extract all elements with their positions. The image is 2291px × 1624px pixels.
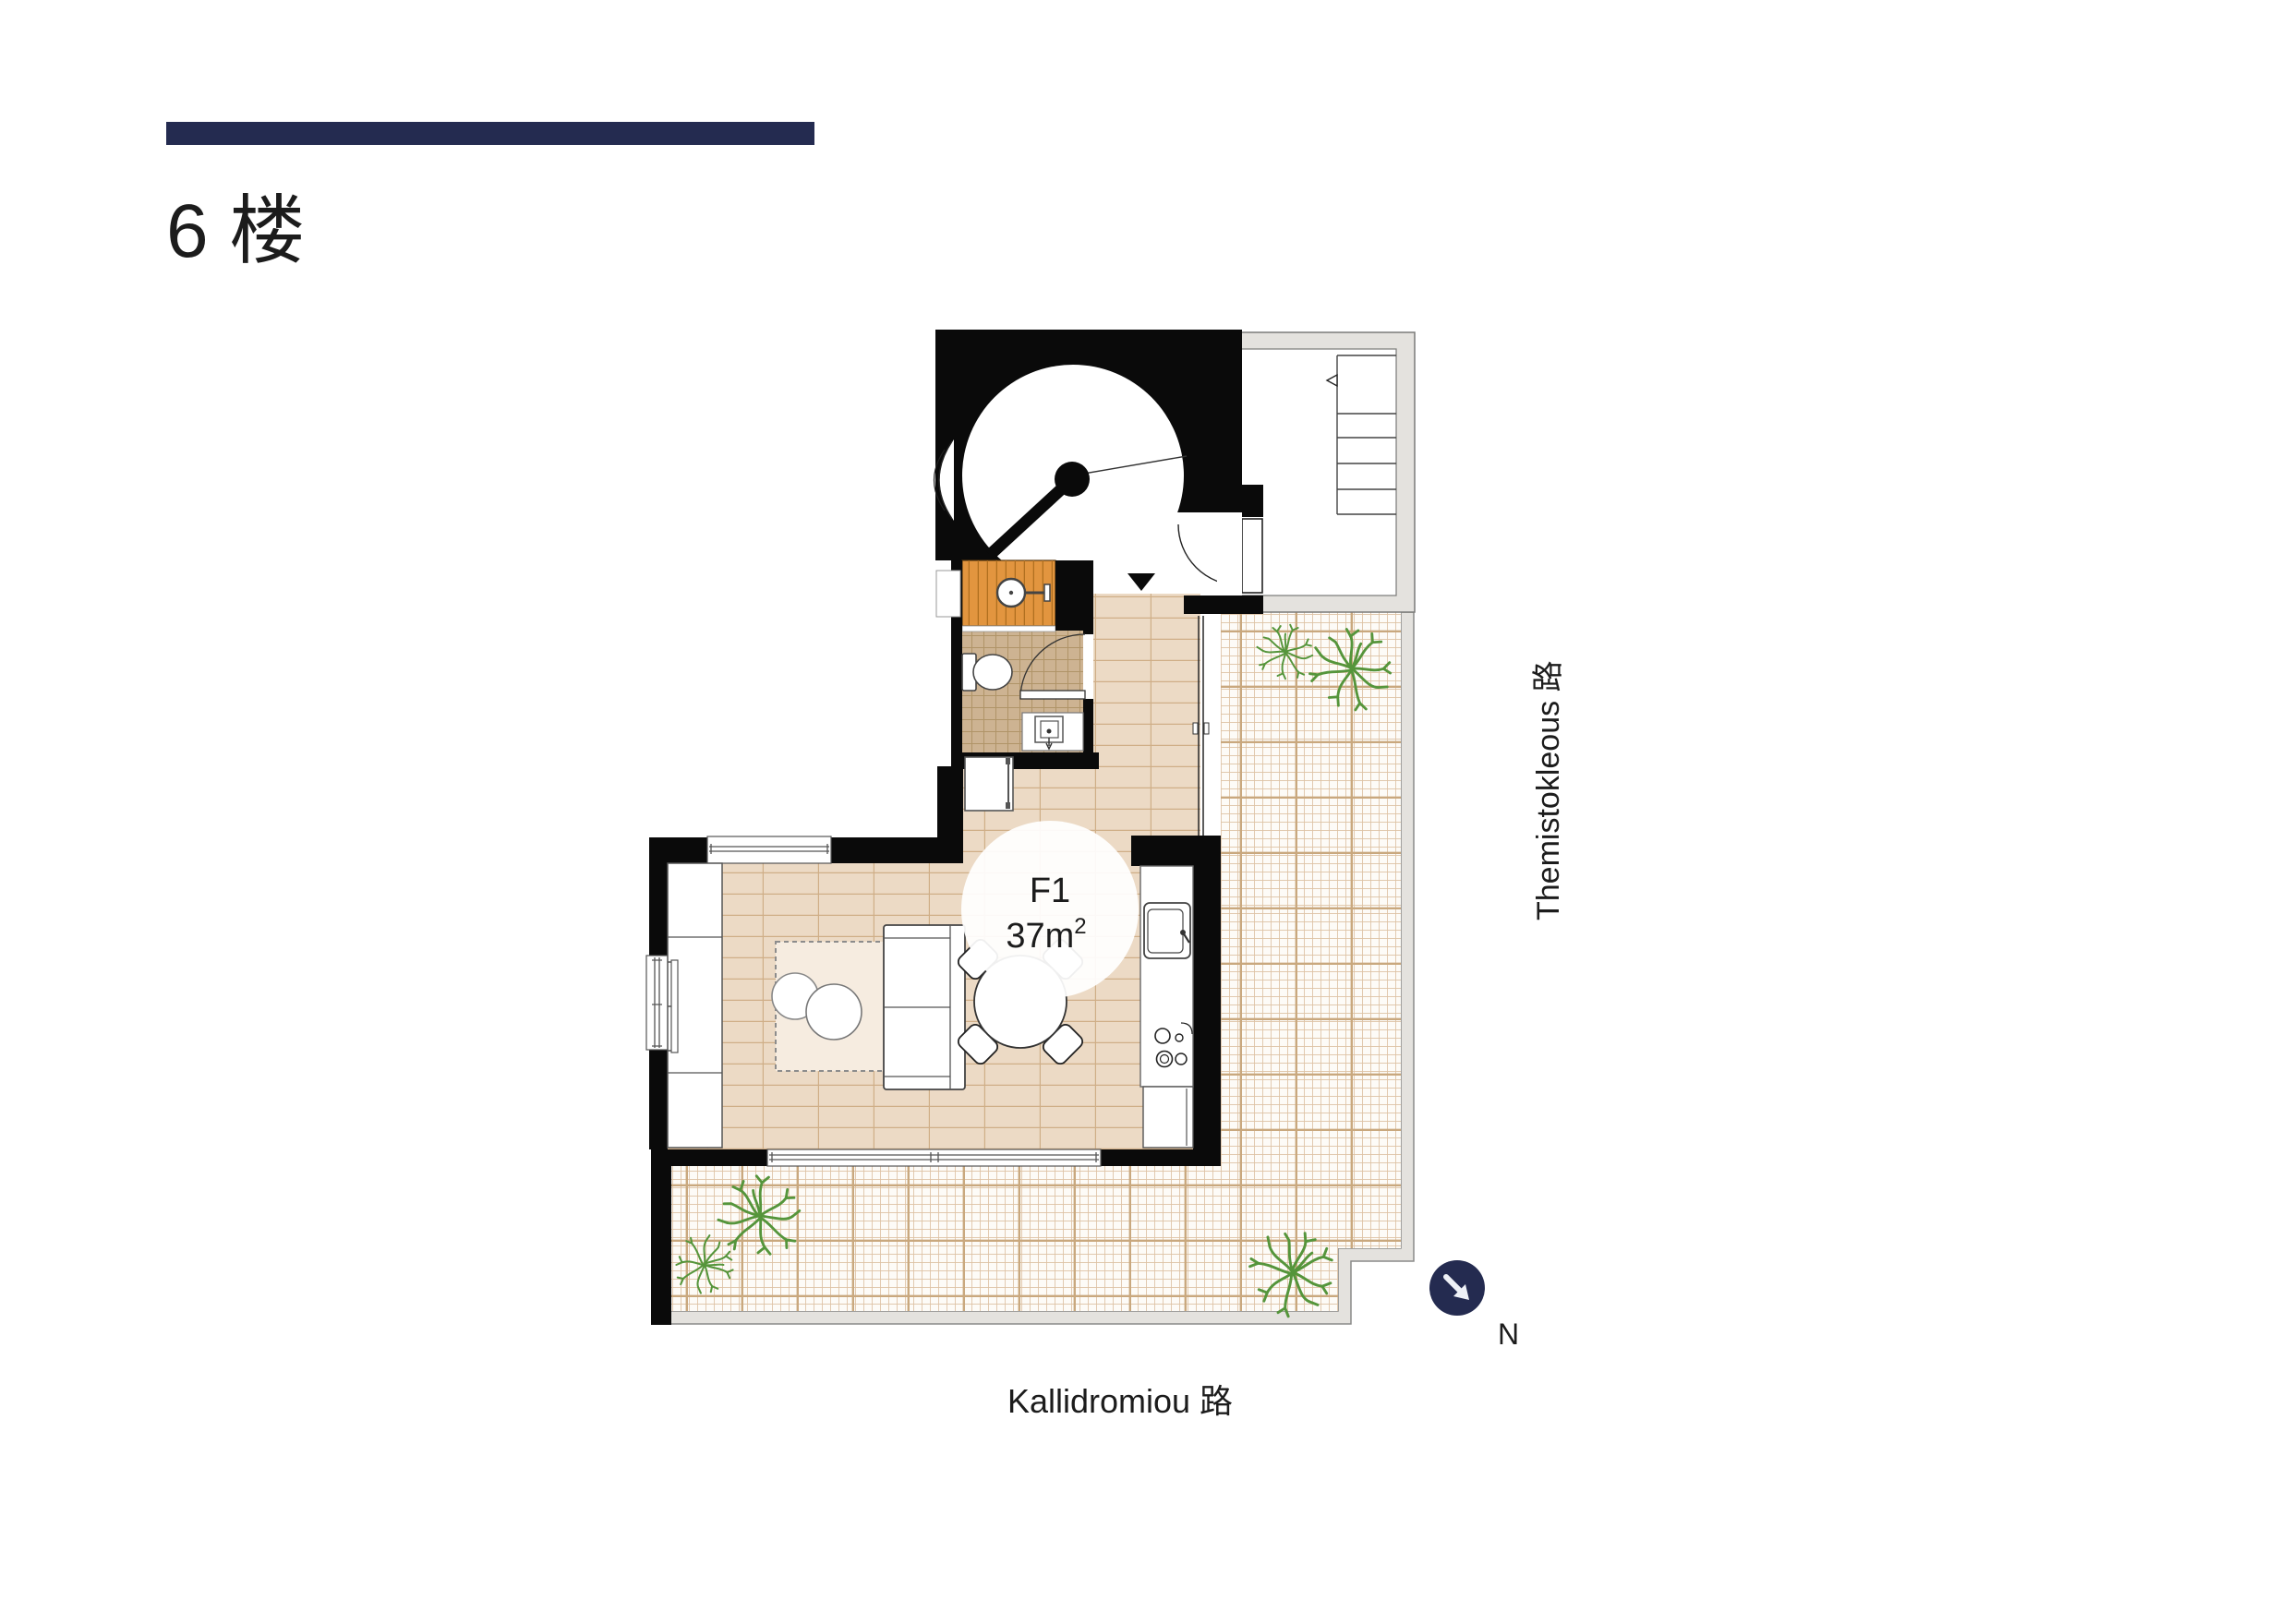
wall-terrace-left	[651, 1149, 671, 1325]
washbasin-icon	[1022, 713, 1083, 751]
toilet-icon	[962, 654, 1012, 691]
wall-wc-right-upper	[1083, 560, 1093, 634]
wall-living-bottom-left	[663, 1149, 769, 1166]
window-living-left	[646, 956, 669, 1050]
spiral-stair-room	[934, 330, 1264, 596]
wall-shower-right	[1055, 560, 1083, 631]
street-label-bottom: Kallidromiou 路	[1007, 1382, 1233, 1420]
north-label: N	[1498, 1317, 1519, 1351]
unit-label-badge: F1 37m2	[961, 821, 1139, 998]
kitchen-sink-icon	[1144, 903, 1190, 958]
wall-kitchen-north	[1131, 836, 1221, 866]
wall-living-top-right	[829, 837, 963, 863]
north-indicator: N	[1429, 1260, 1519, 1351]
shower-wall-niche	[936, 571, 960, 617]
kitchen-counter	[1140, 866, 1193, 1087]
wall-kitchen-east	[1193, 866, 1221, 1149]
entry-door-leaf	[1242, 519, 1262, 593]
entry-door-opening	[1217, 515, 1242, 595]
unit-label: F1	[1030, 872, 1070, 910]
bathroom-door-leaf	[1020, 691, 1085, 699]
wardrobe	[668, 863, 722, 1148]
kitchen	[1140, 866, 1193, 1148]
shower-threshold	[962, 626, 1055, 632]
wall-entry-top	[1184, 595, 1263, 614]
window-living-bottom	[767, 1149, 1101, 1166]
wall-living-left-upper	[649, 863, 668, 957]
kitchen-base-cabinet	[1143, 1087, 1193, 1148]
spiral-center-post	[1055, 462, 1090, 497]
fridge	[965, 757, 1013, 811]
wall-living-left-lower	[649, 1048, 668, 1149]
wall-living-top-left	[649, 837, 709, 863]
unit-area-value: 37m	[1006, 917, 1074, 956]
accent-bar	[166, 122, 814, 145]
street-label-right: Themistokleous 路	[1531, 660, 1566, 920]
wall-living-bottom-right	[1099, 1149, 1221, 1166]
wall-stub	[1242, 485, 1263, 517]
page-title: 6 楼	[166, 189, 305, 273]
sofa	[884, 925, 965, 1089]
pouf	[806, 984, 862, 1040]
floor-plan-canvas: F1 37m2 6 楼 Themistokleous 路 Kallidromio…	[0, 0, 2291, 1624]
header: 6 楼	[166, 122, 814, 273]
wall-wc-right-lower	[1083, 699, 1093, 752]
unit-area-exponent: 2	[1074, 914, 1086, 939]
window-living-top	[707, 836, 831, 863]
